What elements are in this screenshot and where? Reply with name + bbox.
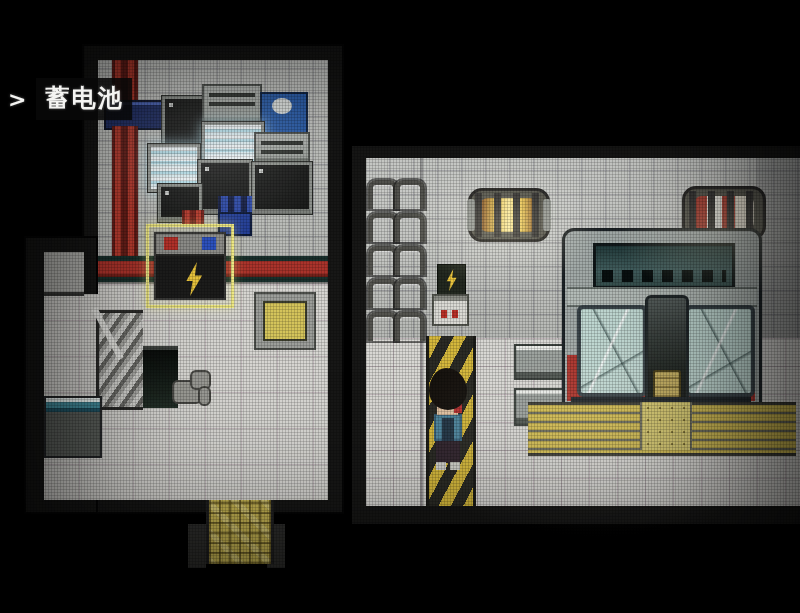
battery-terminal-red xyxy=(164,237,178,250)
train-window-right xyxy=(685,305,755,397)
lightning-bolt-icon xyxy=(444,269,459,291)
bracket-icon xyxy=(368,180,398,209)
bracket-icon xyxy=(368,279,398,308)
player-character xyxy=(428,356,470,478)
menu-cursor-icon: > xyxy=(8,87,28,112)
bracket-icon xyxy=(395,279,425,308)
game-screen: > 蓄电池 xyxy=(0,0,800,613)
outlet-slot xyxy=(441,310,447,318)
yellow-wall-sign xyxy=(254,292,316,350)
bracket-icon xyxy=(395,312,425,341)
wall-bracket-rack xyxy=(368,180,419,345)
bracket-icon xyxy=(395,213,425,242)
door-tactile-mat xyxy=(206,500,274,564)
bracket-icon xyxy=(368,246,398,275)
train-board-vents xyxy=(602,270,726,282)
lamp-cage-bars xyxy=(475,193,543,237)
electric-hazard-sign xyxy=(437,264,466,296)
cat xyxy=(172,364,210,404)
power-outlet xyxy=(432,294,469,326)
door-post-left xyxy=(188,524,206,568)
stairs-down xyxy=(96,310,143,410)
lamp-cap xyxy=(543,199,551,231)
train-window-left xyxy=(577,305,647,397)
outlet-slot xyxy=(452,310,458,318)
wall-shade-right xyxy=(756,158,800,338)
lightning-bolt-icon xyxy=(182,262,206,296)
alcove-wall-ledge xyxy=(44,252,84,296)
character-shoe xyxy=(450,462,460,470)
cat-tail xyxy=(198,386,211,406)
bracket-icon xyxy=(368,213,398,242)
yellow-wall-sign-face xyxy=(263,301,307,341)
character-hair xyxy=(429,368,467,410)
caged-lamp xyxy=(468,188,550,242)
red-pipes-down xyxy=(112,126,138,258)
battery-terminal-blue xyxy=(202,237,216,250)
tactile-paving xyxy=(640,402,692,450)
hud-item-label[interactable]: > 蓄电池 xyxy=(8,80,130,118)
red-valve xyxy=(182,210,204,224)
train-destination-board xyxy=(593,243,735,289)
character-overalls xyxy=(442,418,454,441)
monitor-dark-3 xyxy=(252,162,312,214)
battery-highlight[interactable] xyxy=(146,224,234,308)
character-shoe xyxy=(436,462,446,470)
server-rack-1 xyxy=(202,84,262,126)
lamp-cap xyxy=(467,199,475,231)
battery-object xyxy=(154,232,226,300)
teal-crate-top xyxy=(46,398,100,412)
teal-crate xyxy=(44,396,102,458)
bracket-icon xyxy=(395,180,425,209)
character-legs xyxy=(436,441,460,463)
train-front xyxy=(562,228,762,412)
item-name-text: 蓄电池 xyxy=(38,80,130,118)
server-rack-2 xyxy=(254,132,310,166)
bracket-icon xyxy=(395,246,425,275)
bracket-icon xyxy=(368,312,398,341)
